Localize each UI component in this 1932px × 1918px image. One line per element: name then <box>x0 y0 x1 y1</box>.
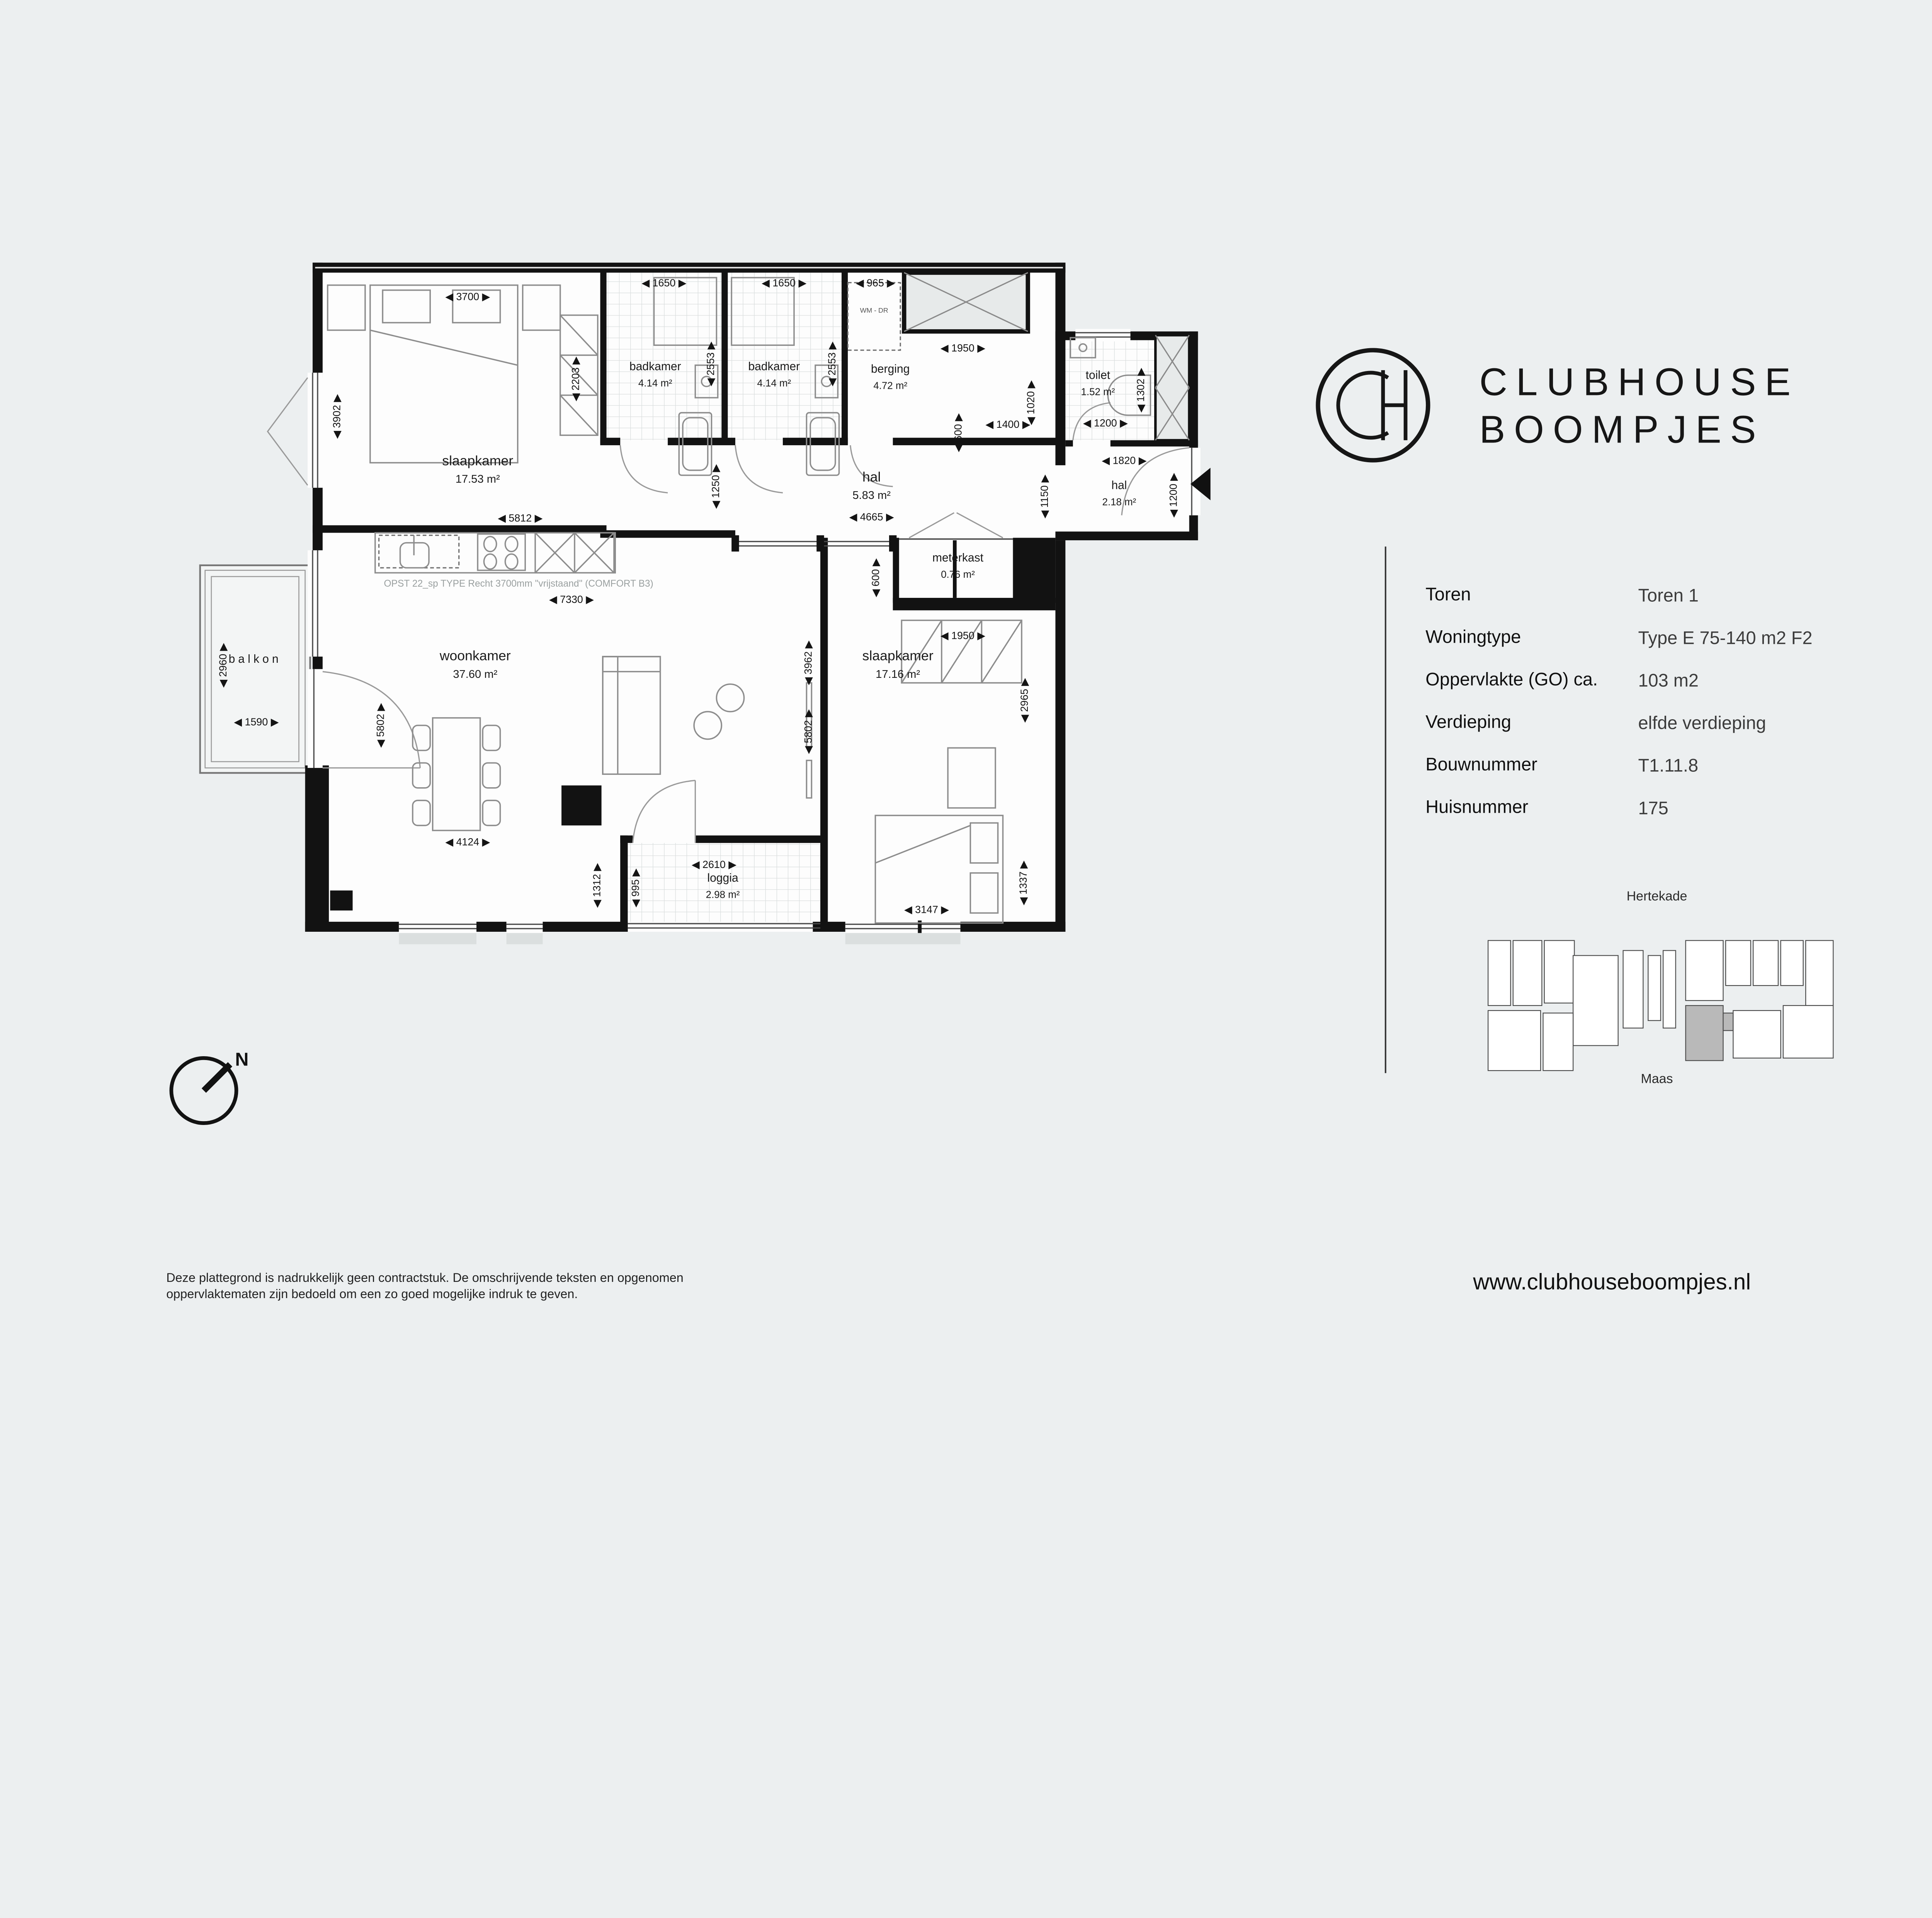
dim-3147: ◀ 3147 ▶ <box>904 904 949 915</box>
dim-2553-b: ◀ 2553 ▶ <box>826 341 838 386</box>
dim-2203: ◀ 2203 ▶ <box>570 356 581 401</box>
highlighted-unit-notch <box>1723 1013 1733 1030</box>
kitchen-note: OPST 22_sp TYPE Recht 3700mm "vrijstaand… <box>384 579 653 589</box>
disclaimer-line1: Deze plattegrond is nadrukkelijk geen co… <box>166 1271 683 1285</box>
room-badkamer1-area: 4.14 m² <box>638 378 672 389</box>
info-row: Oppervlakte (GO) ca. 103 m2 <box>1425 669 1699 690</box>
window-woonkamer-bottom-2 <box>507 921 543 933</box>
dim-4124: ◀ 4124 ▶ <box>445 836 490 848</box>
room-badkamer2-area: 4.14 m² <box>757 378 791 389</box>
dim-600-b: ◀ 600 ▶ <box>870 558 881 597</box>
room-hal-name: hal <box>862 469 881 485</box>
info-row: Woningtype Type E 75-140 m2 F2 <box>1425 626 1812 648</box>
room-badkamer1-name: badkamer <box>629 360 681 373</box>
info-label-bouwnummer: Bouwnummer <box>1425 754 1537 774</box>
info-label-woningtype: Woningtype <box>1425 626 1521 647</box>
brand-block: CLUBHOUSE BOOMPJES <box>1318 350 1799 460</box>
info-value-woningtype: Type E 75-140 m2 F2 <box>1638 628 1812 648</box>
floor-plan: WM - DR <box>200 263 1211 945</box>
floorplan-sheet: WM - DR <box>0 0 1932 1367</box>
room-balkon-name: balkon <box>229 653 282 665</box>
dim-5812: ◀ 5812 ▶ <box>498 512 543 524</box>
room-slaapkamer2-name: slaapkamer <box>862 648 934 664</box>
room-berging-name: berging <box>871 362 910 375</box>
wm-dr-label: WM - DR <box>860 306 888 314</box>
window-hal2-top <box>1075 329 1130 341</box>
room-woonkamer-name: woonkamer <box>439 648 511 664</box>
disclaimer-line2: oppervlaktematen zijn bedoeld om een zo … <box>166 1287 578 1301</box>
dim-2610: ◀ 2610 ▶ <box>692 859 736 870</box>
room-toilet-name: toilet <box>1086 369 1111 382</box>
window-woonkamer-bottom-1 <box>399 921 476 933</box>
dim-1312: ◀ 1312 ▶ <box>591 863 602 908</box>
site-buildings <box>1488 941 1833 1071</box>
info-label-toren: Toren <box>1425 584 1471 604</box>
dim-2960: ◀ 2960 ▶ <box>217 643 229 688</box>
room-slaapkamer1-area: 17.53 m² <box>456 473 500 485</box>
room-berging-area: 4.72 m² <box>873 380 907 391</box>
dim-1020: ◀ 1020 ▶ <box>1025 380 1036 425</box>
highlighted-unit <box>1685 1006 1723 1060</box>
info-row: Huisnummer 175 <box>1425 797 1668 818</box>
brand-name-line1: CLUBHOUSE <box>1479 361 1799 404</box>
compass-north-label: N <box>235 1049 248 1070</box>
brand-name-line2: BOOMPJES <box>1479 408 1765 451</box>
dim-1400: ◀ 1400 ▶ <box>985 419 1030 430</box>
info-label-verdieping: Verdieping <box>1425 711 1511 732</box>
dim-1650-b: ◀ 1650 ▶ <box>762 277 806 289</box>
dim-1590: ◀ 1590 ▶ <box>234 716 279 728</box>
dim-995: ◀ 995 ▶ <box>630 868 641 907</box>
dim-1650-a: ◀ 1650 ▶ <box>641 277 686 289</box>
shaft-berging <box>904 272 1028 331</box>
dim-965: ◀ 965 ▶ <box>856 277 895 289</box>
room-hal-area: 5.83 m² <box>852 489 891 502</box>
info-row: Toren Toren 1 <box>1425 584 1699 605</box>
window-slaapkamer-left <box>268 373 323 488</box>
dim-1950-b: ◀ 1950 ▶ <box>940 630 985 642</box>
dim-1950-a: ◀ 1950 ▶ <box>940 342 985 354</box>
dim-5802-b: ◀ 5802 ▶ <box>802 709 814 754</box>
info-value-bouwnummer: T1.11.8 <box>1638 756 1698 776</box>
site-map: Hertekade Maas <box>1488 889 1833 1086</box>
logo-circle-icon <box>1318 350 1428 460</box>
dim-3902: ◀ 3902 ▶ <box>331 394 342 439</box>
room-woonkamer-area: 37.60 m² <box>453 668 497 681</box>
window-sills <box>399 932 960 944</box>
dim-3700: ◀ 3700 ▶ <box>445 291 490 303</box>
room-slaapkamer1-name: slaapkamer <box>442 453 513 468</box>
dim-1820: ◀ 1820 ▶ <box>1102 455 1146 466</box>
dim-2553-a: ◀ 2553 ▶ <box>705 341 716 386</box>
footer: Deze plattegrond is nadrukkelijk geen co… <box>166 1270 1751 1301</box>
room-slaapkamer2-area: 17.16 m² <box>876 668 920 681</box>
dim-1200-a: ◀ 1200 ▶ <box>1083 417 1128 429</box>
dim-7330: ◀ 7330 ▶ <box>549 594 594 605</box>
wall-cavity-line <box>315 267 1063 269</box>
dim-1337: ◀ 1337 ▶ <box>1017 860 1029 905</box>
room-hal2-name: hal <box>1111 479 1127 492</box>
dim-600-a: ◀ 600 ▶ <box>952 413 964 452</box>
dim-1150: ◀ 1150 ▶ <box>1039 474 1050 518</box>
dim-1302: ◀ 1302 ▶ <box>1135 368 1146 412</box>
dim-5802-a: ◀ 5802 ▶ <box>375 703 386 748</box>
info-label-huisnummer: Huisnummer <box>1425 797 1528 817</box>
info-value-huisnummer: 175 <box>1638 798 1668 818</box>
info-row: Bouwnummer T1.11.8 <box>1425 754 1698 776</box>
shaft-toilet <box>1155 335 1189 440</box>
dim-1200-b: ◀ 1200 ▶ <box>1167 473 1179 517</box>
compass-needle-icon <box>204 1064 230 1091</box>
logo-ch-monogram-icon <box>1338 370 1405 440</box>
dim-2965: ◀ 2965 ▶ <box>1019 678 1030 723</box>
info-value-oppervlakte: 103 m2 <box>1638 671 1698 691</box>
room-meterkast-area: 0.76 m² <box>941 569 975 580</box>
info-row: Verdieping elfde verdieping <box>1425 711 1766 733</box>
room-loggia-area: 2.98 m² <box>706 890 740 900</box>
room-toilet-area: 1.52 m² <box>1081 387 1115 398</box>
dim-3962: ◀ 3962 ▶ <box>802 640 814 685</box>
room-hal2-area: 2.18 m² <box>1102 497 1136 507</box>
website-link[interactable]: www.clubhouseboompjes.nl <box>1473 1270 1751 1295</box>
info-value-verdieping: elfde verdieping <box>1638 713 1766 733</box>
dim-4665: ◀ 4665 ▶ <box>849 511 894 522</box>
balkon-structure <box>200 565 310 773</box>
street-label-top: Hertekade <box>1627 889 1687 904</box>
window-woonkamer-left <box>308 550 323 657</box>
room-meterkast-name: meterkast <box>932 551 984 564</box>
compass: N <box>171 1049 248 1123</box>
room-badkamer2-name: badkamer <box>748 360 800 373</box>
street-label-bottom: Maas <box>1641 1072 1673 1086</box>
info-label-oppervlakte: Oppervlakte (GO) ca. <box>1425 669 1598 689</box>
dim-1250: ◀ 1250 ▶ <box>710 464 721 509</box>
room-loggia-name: loggia <box>707 872 738 885</box>
info-value-toren: Toren 1 <box>1638 585 1698 606</box>
